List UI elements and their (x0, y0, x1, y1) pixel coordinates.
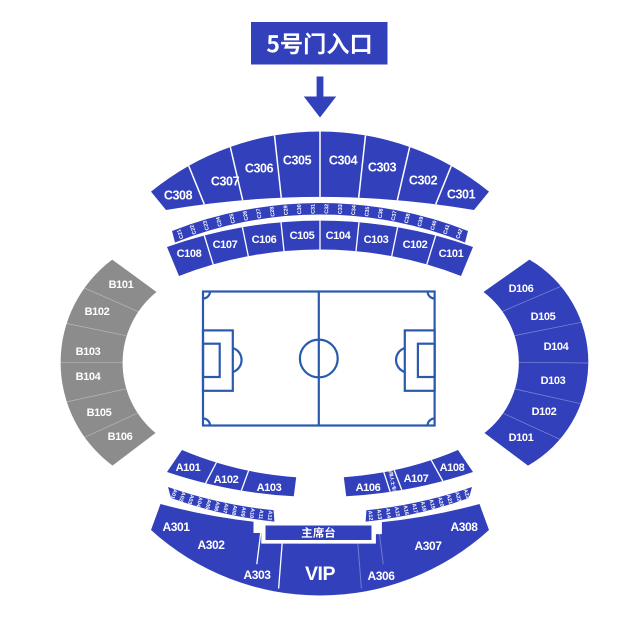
svg-text:A103: A103 (257, 482, 282, 494)
svg-text:C308: C308 (164, 188, 193, 202)
svg-text:C31: C31 (311, 204, 317, 214)
svg-text:C103: C103 (364, 234, 389, 246)
svg-text:A101: A101 (176, 462, 201, 474)
svg-text:C34: C34 (351, 205, 358, 215)
svg-text:D104: D104 (544, 341, 570, 353)
svg-text:C306: C306 (245, 161, 274, 175)
svg-text:C302: C302 (409, 173, 438, 187)
svg-text:C33: C33 (338, 204, 344, 214)
svg-text:A13: A13 (375, 509, 382, 520)
svg-text:B104: B104 (76, 371, 102, 383)
svg-text:B105: B105 (87, 407, 112, 419)
svg-text:D103: D103 (541, 375, 566, 387)
svg-text:D101: D101 (509, 432, 534, 444)
svg-text:C104: C104 (326, 230, 352, 242)
svg-text:C28: C28 (269, 206, 276, 217)
svg-text:A107: A107 (404, 473, 429, 485)
svg-text:D105: D105 (531, 311, 556, 323)
svg-text:C303: C303 (368, 160, 397, 174)
svg-text:A108: A108 (440, 462, 465, 474)
svg-text:C101: C101 (439, 248, 464, 260)
svg-text:C107: C107 (213, 239, 238, 251)
svg-text:A11: A11 (257, 509, 264, 519)
svg-text:C35: C35 (364, 206, 371, 217)
svg-text:A308: A308 (450, 520, 478, 534)
svg-text:C305: C305 (283, 153, 312, 167)
svg-text:B106: B106 (108, 431, 133, 443)
svg-text:C102: C102 (403, 239, 428, 251)
svg-text:C30: C30 (297, 204, 303, 214)
svg-text:VIP: VIP (305, 563, 335, 585)
svg-text:C105: C105 (290, 230, 315, 242)
svg-text:C32: C32 (324, 204, 330, 214)
svg-text:B101: B101 (109, 279, 134, 291)
svg-text:A106: A106 (356, 482, 381, 494)
svg-text:C304: C304 (329, 153, 358, 167)
svg-text:C29: C29 (283, 205, 290, 215)
svg-text:A102: A102 (214, 474, 239, 486)
svg-text:C108: C108 (177, 248, 202, 260)
svg-text:C307: C307 (211, 174, 240, 188)
svg-text:C106: C106 (252, 234, 277, 246)
svg-text:A307: A307 (414, 539, 442, 553)
svg-text:D102: D102 (532, 406, 557, 418)
svg-text:D106: D106 (509, 283, 534, 295)
svg-text:A306: A306 (367, 569, 395, 583)
svg-text:B103: B103 (76, 346, 101, 358)
svg-text:A303: A303 (243, 568, 271, 582)
svg-text:A12: A12 (366, 510, 373, 520)
svg-text:C301: C301 (447, 187, 476, 201)
svg-text:A12: A12 (266, 510, 273, 520)
svg-text:B102: B102 (85, 306, 110, 318)
svg-text:A301: A301 (162, 520, 190, 534)
svg-text:A302: A302 (197, 538, 225, 552)
